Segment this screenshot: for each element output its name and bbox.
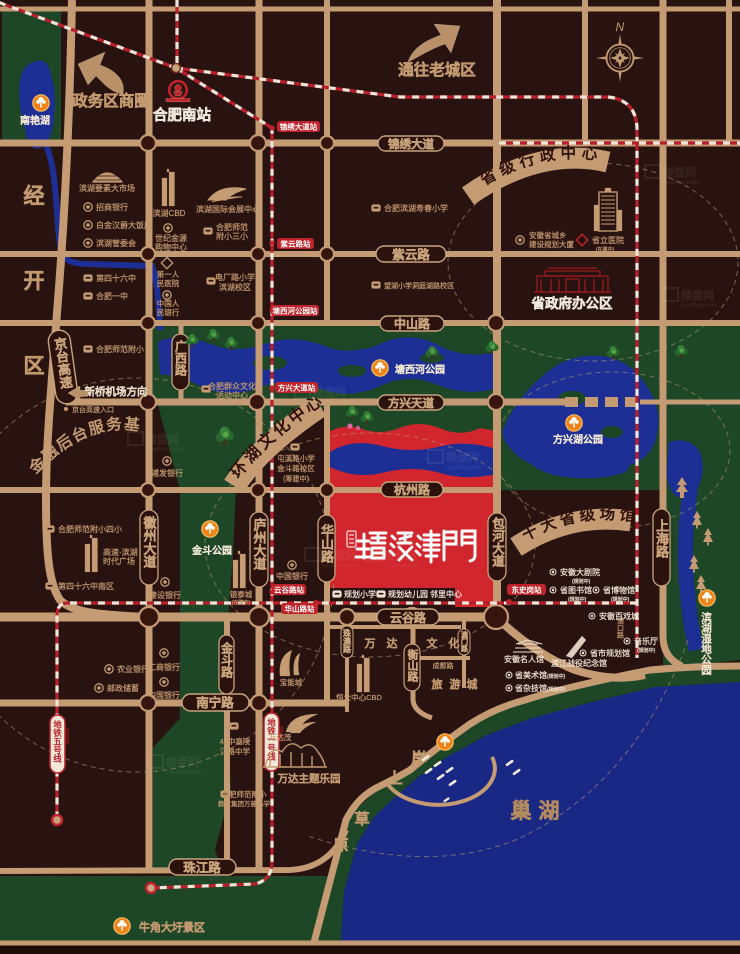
svg-text:中山路: 中山路 bbox=[394, 316, 431, 331]
svg-text:草: 草 bbox=[354, 810, 369, 828]
svg-text:楼盘网: 楼盘网 bbox=[323, 548, 356, 562]
svg-text:第一人: 第一人 bbox=[157, 269, 180, 279]
svg-text:合肥师范附小: 合肥师范附小 bbox=[96, 344, 144, 354]
svg-text:上海路: 上海路 bbox=[654, 519, 669, 558]
svg-text:塘西河公园: 塘西河公园 bbox=[395, 363, 445, 376]
svg-text:LouPan.com: LouPan.com bbox=[663, 180, 699, 186]
svg-text:地铁五号线: 地铁五号线 bbox=[53, 719, 63, 763]
svg-text:宝能城: 宝能城 bbox=[280, 677, 303, 687]
svg-text:LouPan.com: LouPan.com bbox=[384, 563, 420, 569]
svg-text:LouPan.com: LouPan.com bbox=[446, 465, 482, 471]
svg-text:世纪金源: 世纪金源 bbox=[155, 233, 187, 243]
svg-text:成都路: 成都路 bbox=[433, 661, 454, 670]
svg-text:紫云路站: 紫云路站 bbox=[281, 239, 311, 249]
svg-text:城: 城 bbox=[467, 677, 478, 691]
svg-text:徽州大道: 徽州大道 bbox=[142, 515, 158, 569]
svg-text:华山路站: 华山路站 bbox=[285, 604, 315, 614]
svg-text:合肥南站: 合肥南站 bbox=[152, 106, 211, 124]
svg-text:合肥师范附小: 合肥师范附小 bbox=[222, 789, 267, 799]
svg-text:紫云路: 紫云路 bbox=[392, 247, 430, 262]
svg-text:云谷路站: 云谷路站 bbox=[274, 585, 304, 595]
svg-text:招商银行: 招商银行 bbox=[96, 202, 128, 212]
svg-text:滨湖湿地公园: 滨湖湿地公园 bbox=[700, 611, 712, 676]
svg-text:游: 游 bbox=[450, 677, 461, 691]
svg-text:教育集团万慈小学: 教育集团万慈小学 bbox=[218, 799, 271, 808]
svg-text:广西路: 广西路 bbox=[174, 339, 188, 377]
svg-text:万达茂: 万达茂 bbox=[269, 732, 292, 742]
svg-text:上: 上 bbox=[387, 770, 402, 787]
svg-text:邮政储蓄: 邮政储蓄 bbox=[107, 683, 139, 693]
svg-text:楼盘网: 楼盘网 bbox=[446, 450, 479, 464]
svg-text:政务区商圈: 政务区商圈 bbox=[72, 91, 150, 110]
svg-text:邻里中心: 邻里中心 bbox=[430, 589, 462, 599]
svg-text:滨湖要素大市场: 滨湖要素大市场 bbox=[79, 183, 135, 193]
svg-text:第四十六中: 第四十六中 bbox=[96, 273, 136, 283]
svg-text:第四十六中南区: 第四十六中南区 bbox=[58, 581, 114, 591]
svg-text:LouPan.com: LouPan.com bbox=[681, 303, 717, 309]
svg-text:浦发银行: 浦发银行 bbox=[151, 468, 183, 478]
svg-text:新桥机场方向: 新桥机场方向 bbox=[85, 385, 148, 398]
svg-text:合肥滨湖寿春小学: 合肥滨湖寿春小学 bbox=[384, 203, 448, 213]
svg-text:滨湖管委会: 滨湖管委会 bbox=[96, 238, 136, 248]
svg-text:中国银行: 中国银行 bbox=[276, 571, 308, 581]
svg-text:南艳湖: 南艳湖 bbox=[20, 114, 50, 127]
svg-text:塘西河公园站: 塘西河公园站 bbox=[273, 306, 318, 316]
svg-text:农业银行: 农业银行 bbox=[117, 664, 149, 674]
svg-text:安徽省城乡: 安徽省城乡 bbox=[529, 230, 567, 240]
svg-text:省杂技馆: 省杂技馆 bbox=[515, 683, 547, 693]
svg-text:(规划中): (规划中) bbox=[547, 686, 566, 693]
svg-text:合肥师范: 合肥师范 bbox=[216, 222, 248, 232]
svg-text:民银行: 民银行 bbox=[157, 307, 180, 317]
svg-text:购物中心: 购物中心 bbox=[155, 242, 187, 252]
svg-text:杭州路: 杭州路 bbox=[394, 482, 431, 497]
svg-text:珠澳路: 珠澳路 bbox=[342, 628, 352, 654]
svg-text:省美术馆: 省美术馆 bbox=[515, 670, 547, 680]
svg-text:庐州大道: 庐州大道 bbox=[252, 517, 268, 571]
svg-text:万达主题乐园: 万达主题乐园 bbox=[277, 772, 341, 785]
svg-text:原: 原 bbox=[333, 837, 348, 854]
svg-text:楼盘网: 楼盘网 bbox=[313, 385, 346, 399]
svg-text:省立医院: 省立医院 bbox=[592, 235, 624, 245]
svg-text:合肥师范附小四小: 合肥师范附小四小 bbox=[58, 524, 122, 534]
svg-text:中国银行: 中国银行 bbox=[148, 690, 180, 700]
svg-text:省图书馆: 省图书馆 bbox=[560, 585, 592, 595]
svg-text:金斗路: 金斗路 bbox=[220, 641, 234, 679]
svg-text:化: 化 bbox=[449, 636, 460, 650]
svg-text:规划小学: 规划小学 bbox=[344, 589, 376, 599]
svg-text:澳门路: 澳门路 bbox=[460, 630, 468, 653]
svg-text:银泰城: 银泰城 bbox=[230, 589, 253, 599]
svg-text:京台高速入口: 京台高速入口 bbox=[72, 405, 114, 414]
svg-text:白金汉爵大饭店: 白金汉爵大饭店 bbox=[96, 220, 152, 230]
svg-text:开: 开 bbox=[24, 270, 45, 293]
svg-text:旅: 旅 bbox=[432, 677, 443, 691]
svg-text:(在建中): (在建中) bbox=[596, 246, 615, 253]
svg-text:省市规划馆: 省市规划馆 bbox=[590, 648, 630, 658]
svg-text:附小三小: 附小三小 bbox=[216, 231, 248, 241]
svg-text:衡山路: 衡山路 bbox=[406, 648, 419, 683]
svg-text:LouPan.com: LouPan.com bbox=[313, 400, 349, 406]
svg-text:LouPan.com: LouPan.com bbox=[323, 563, 359, 569]
svg-text:电厂路小学: 电厂路小学 bbox=[215, 272, 255, 282]
svg-text:中国人: 中国人 bbox=[157, 298, 180, 308]
svg-text:锦绣大道: 锦绣大道 bbox=[388, 137, 434, 151]
svg-text:(在建中): (在建中) bbox=[232, 599, 251, 606]
svg-text:江路中学: 江路中学 bbox=[220, 746, 250, 756]
svg-text:经: 经 bbox=[24, 184, 45, 208]
svg-text:金斗路校区: 金斗路校区 bbox=[277, 463, 315, 473]
svg-text:滨湖CBD: 滨湖CBD bbox=[153, 208, 186, 218]
svg-text:湖: 湖 bbox=[539, 800, 560, 823]
svg-text:锦绣大道站: 锦绣大道站 bbox=[280, 122, 318, 132]
svg-text:(规划中): (规划中) bbox=[611, 596, 630, 603]
svg-text:民医院: 民医院 bbox=[157, 278, 180, 288]
svg-text:(筹建中): (筹建中) bbox=[283, 474, 309, 483]
svg-text:省博物馆: 省博物馆 bbox=[603, 585, 635, 595]
svg-text:(规划中): (规划中) bbox=[547, 673, 566, 680]
svg-text:滨湖国际会展中心: 滨湖国际会展中心 bbox=[196, 204, 260, 214]
svg-text:LouPan.com: LouPan.com bbox=[146, 447, 182, 453]
svg-text:达: 达 bbox=[387, 636, 398, 650]
svg-text:楼盘网: 楼盘网 bbox=[384, 548, 417, 562]
svg-text:万: 万 bbox=[364, 637, 376, 650]
svg-text:巢: 巢 bbox=[510, 799, 532, 823]
svg-text:建设规划大厦: 建设规划大厦 bbox=[529, 239, 574, 249]
svg-text:渡江战役纪念馆: 渡江战役纪念馆 bbox=[551, 658, 607, 668]
svg-text:牛角大圩景区: 牛角大圩景区 bbox=[139, 920, 205, 934]
svg-text:望湖小学洞庭湖路校区: 望湖小学洞庭湖路校区 bbox=[384, 281, 454, 290]
svg-text:建设银行: 建设银行 bbox=[149, 590, 181, 600]
svg-text:云谷路: 云谷路 bbox=[390, 610, 427, 625]
svg-text:合肥群众文化: 合肥群众文化 bbox=[208, 381, 256, 391]
svg-text:省政府办公区: 省政府办公区 bbox=[531, 295, 613, 311]
svg-text:滨湖校区: 滨湖校区 bbox=[219, 282, 251, 292]
svg-text:屯溪路小学: 屯溪路小学 bbox=[277, 453, 315, 463]
svg-text:楼盘网: 楼盘网 bbox=[166, 755, 199, 769]
svg-text:(建设中): (建设中) bbox=[65, 728, 71, 745]
svg-text:方兴天道: 方兴天道 bbox=[388, 396, 434, 410]
svg-text:南宁路: 南宁路 bbox=[196, 695, 234, 710]
svg-text:时代广场: 时代广场 bbox=[103, 556, 135, 566]
svg-text:区: 区 bbox=[24, 355, 45, 378]
svg-text:恒大中心CBD: 恒大中心CBD bbox=[336, 692, 382, 702]
svg-text:珠江路: 珠江路 bbox=[183, 860, 221, 875]
svg-text:LouPan.com: LouPan.com bbox=[166, 770, 202, 776]
svg-text:安徽名人馆: 安徽名人馆 bbox=[504, 654, 544, 664]
svg-text:安徽大剧院: 安徽大剧院 bbox=[560, 567, 600, 577]
svg-text:合肥一中: 合肥一中 bbox=[96, 291, 128, 301]
svg-text:48中嘉陵: 48中嘉陵 bbox=[220, 736, 251, 746]
svg-text:活动中心: 活动中心 bbox=[216, 390, 248, 400]
svg-text:高速·滨湖: 高速·滨湖 bbox=[103, 547, 138, 557]
svg-text:包河大道: 包河大道 bbox=[490, 516, 505, 568]
svg-text:楼盘网: 楼盘网 bbox=[663, 165, 696, 179]
svg-text:(规划中): (规划中) bbox=[572, 578, 591, 585]
svg-text:楼盘网: 楼盘网 bbox=[681, 288, 714, 302]
svg-text:文: 文 bbox=[427, 636, 439, 650]
svg-text:规划幼儿园: 规划幼儿园 bbox=[388, 589, 428, 599]
svg-text:通往老城区: 通往老城区 bbox=[398, 60, 476, 79]
svg-text:东史岗站: 东史岗站 bbox=[512, 585, 542, 595]
svg-text:工商银行: 工商银行 bbox=[148, 662, 180, 672]
svg-text:N: N bbox=[616, 20, 625, 34]
svg-text:安徽百戏城: 安徽百戏城 bbox=[599, 611, 639, 621]
svg-text:方兴湖公园: 方兴湖公园 bbox=[553, 433, 603, 446]
svg-text:(规划中): (规划中) bbox=[637, 647, 656, 654]
svg-text:(规划中): (规划中) bbox=[568, 596, 587, 603]
svg-text:楼盘网: 楼盘网 bbox=[146, 432, 179, 446]
svg-text:音乐厅: 音乐厅 bbox=[634, 636, 658, 646]
svg-text:金斗公园: 金斗公园 bbox=[191, 544, 232, 557]
